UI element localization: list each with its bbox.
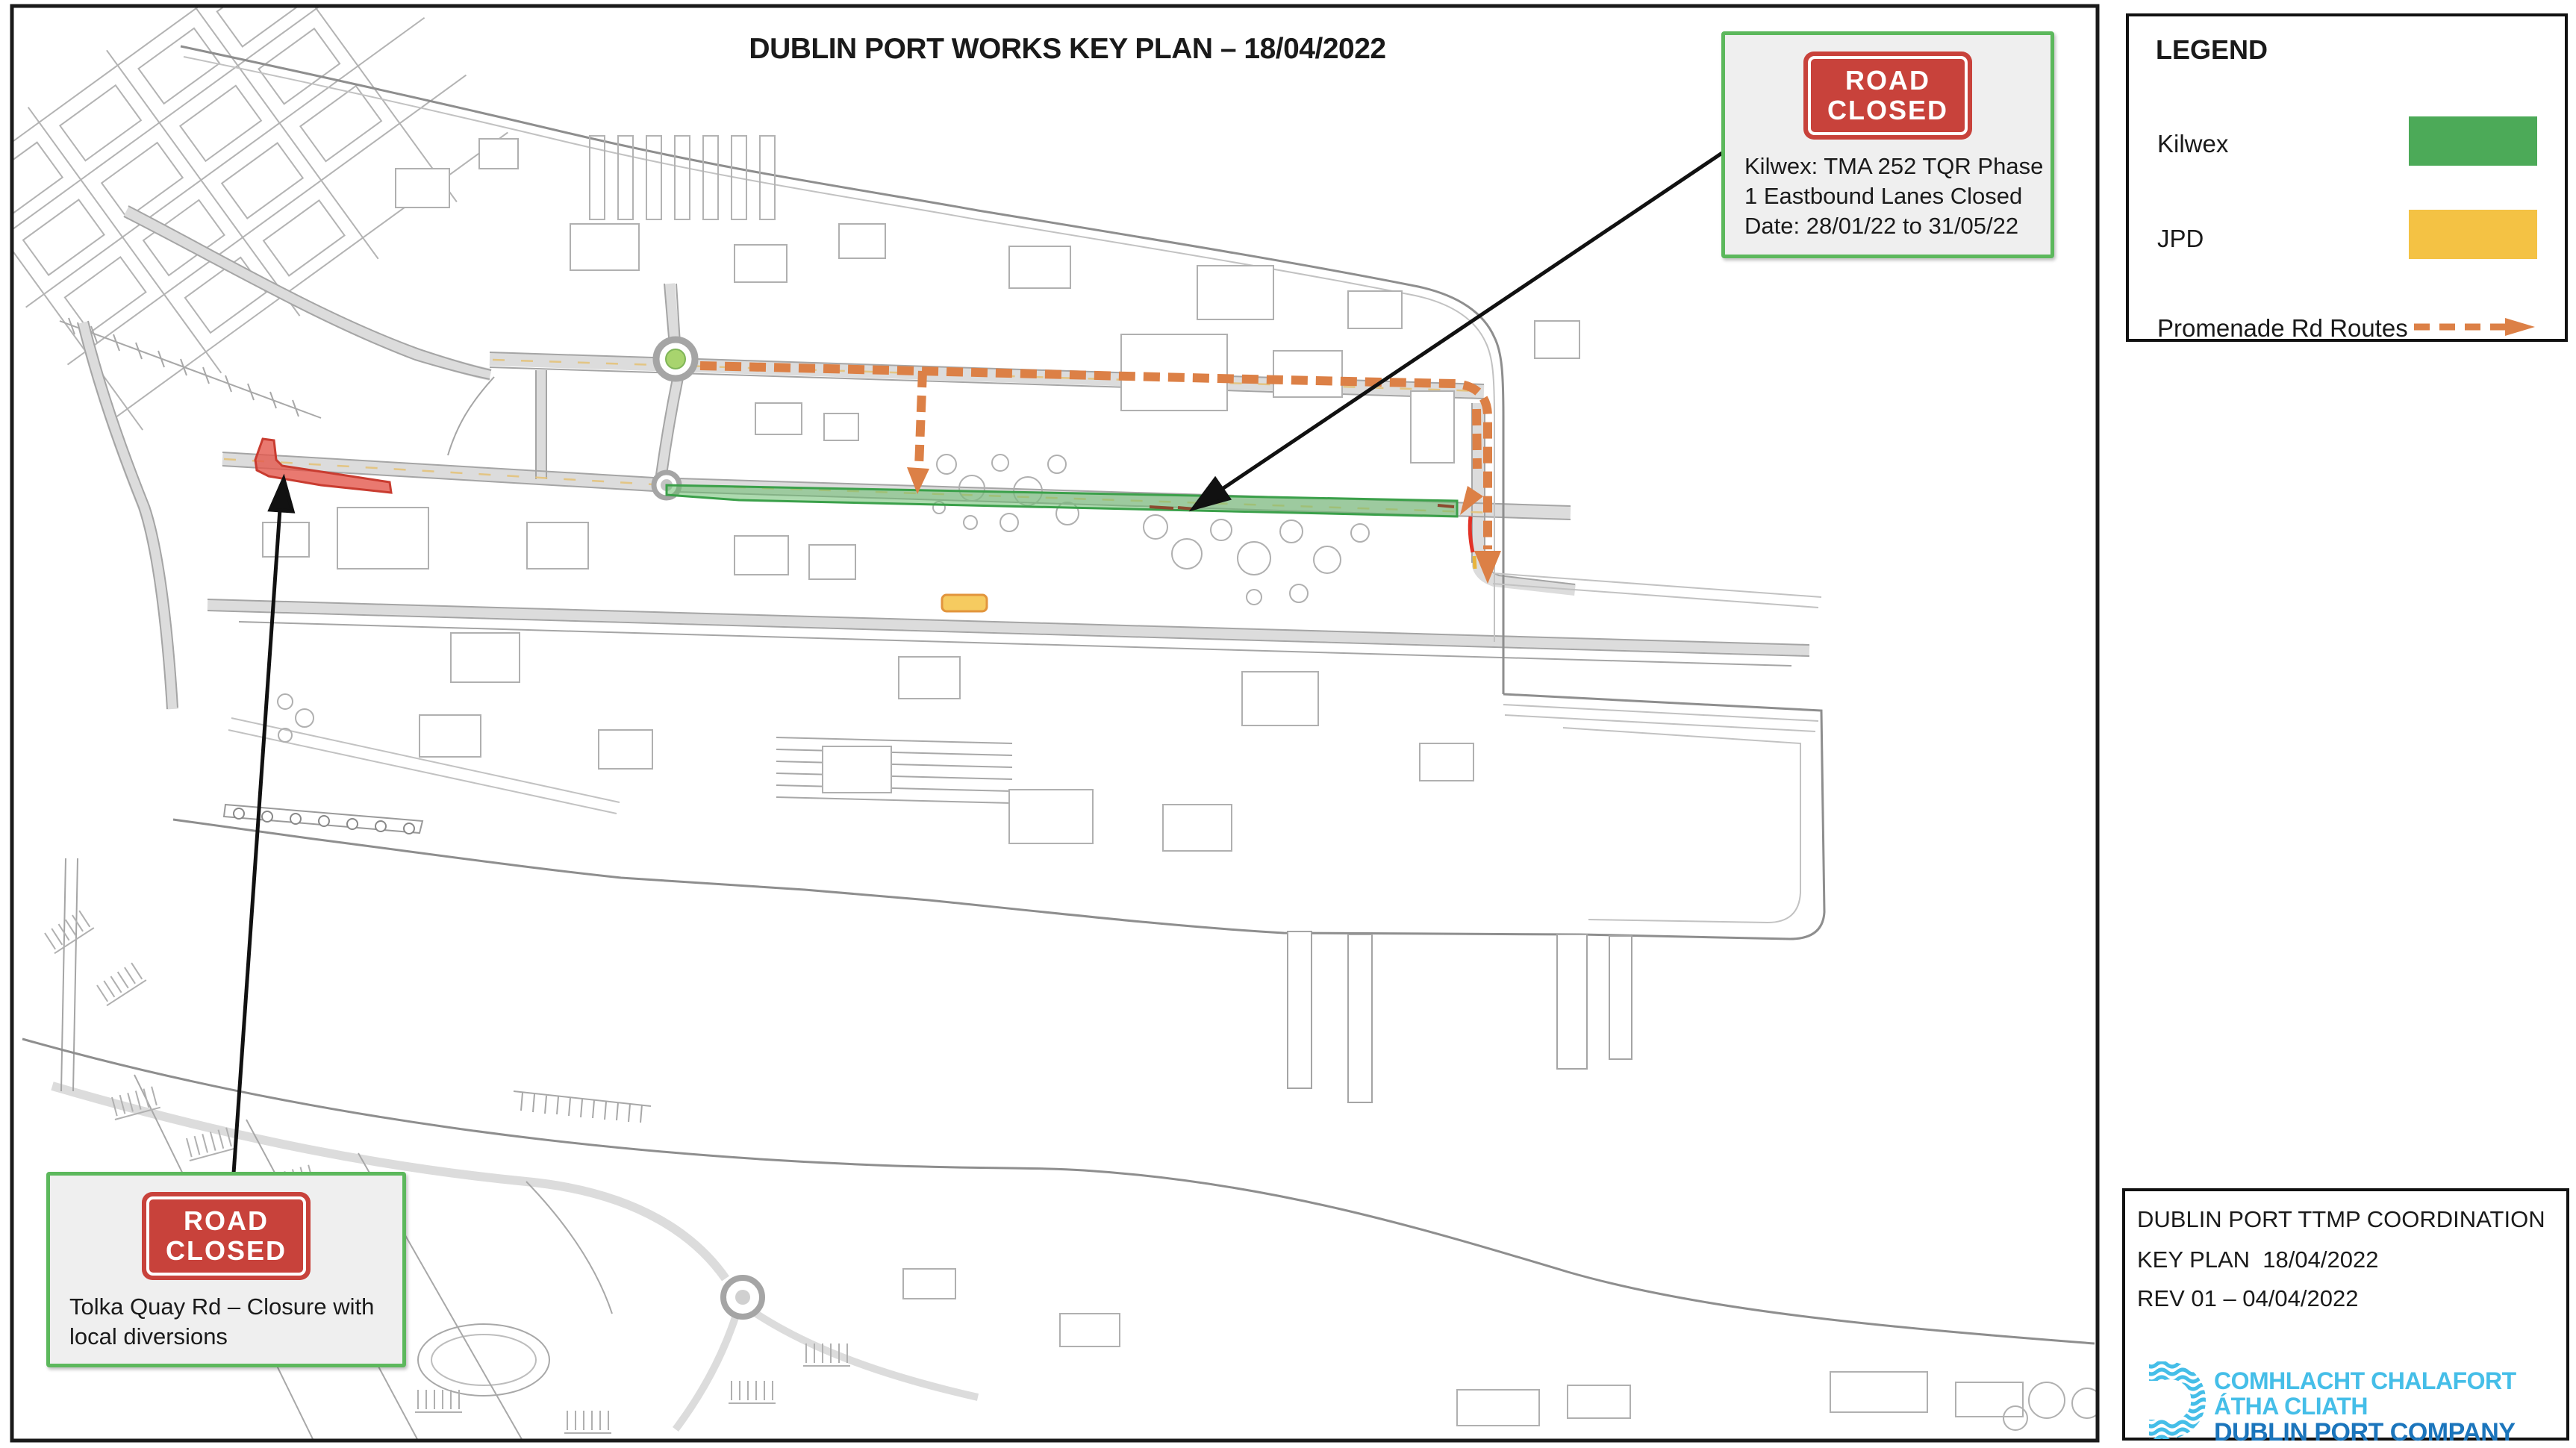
promenade-route-arrowheads [907, 467, 1501, 584]
sign-text: ROAD [184, 1206, 269, 1236]
sign-text: ROAD [1845, 66, 1930, 96]
title-block-line: KEY PLAN 18/04/2022 [2137, 1246, 2378, 1273]
callout-text-line: Tolka Quay Rd – Closure with [69, 1292, 402, 1322]
roundabout-island [666, 349, 685, 369]
sign-text: CLOSED [166, 1236, 287, 1266]
promenade-route-arrow-icon [2411, 315, 2538, 339]
title-block-line: REV 01 – 04/04/2022 [2137, 1285, 2358, 1312]
jpd-swatch [2409, 210, 2537, 259]
page-title: DUBLIN PORT WORKS KEY PLAN – 18/04/2022 [709, 33, 1426, 66]
sign-text: CLOSED [1827, 96, 1948, 125]
title-block-line: DUBLIN PORT TTMP COORDINATION [2137, 1206, 2545, 1233]
kilwex-swatch [2409, 116, 2537, 166]
title-block: DUBLIN PORT TTMP COORDINATION KEY PLAN 1… [2122, 1188, 2569, 1441]
road-closed-sign: ROAD CLOSED [1803, 52, 1972, 140]
callout-text-line: Date: 28/01/22 to 31/05/22 [1744, 211, 2050, 241]
logo-text-line: DUBLIN PORT COMPANY [2214, 1418, 2516, 1447]
legend-label-kilwex: Kilwex [2157, 130, 2228, 158]
callout-text-line: 1 Eastbound Lanes Closed [1744, 181, 2050, 211]
dublin-port-logo-icon [2139, 1360, 2207, 1442]
callout-body: Tolka Quay Rd – Closure with local diver… [69, 1292, 402, 1352]
legend-heading: LEGEND [2156, 34, 2268, 66]
legend-label-promenade: Promenade Rd Routes [2157, 314, 2408, 343]
dublin-port-key-plan-page: DUBLIN PORT WORKS KEY PLAN – 18/04/2022 … [0, 0, 2576, 1448]
callout-tolka-closure: ROAD CLOSED Tolka Quay Rd – Closure with… [46, 1172, 406, 1367]
legend-panel: LEGEND Kilwex JPD Promenade Rd Routes [2126, 13, 2568, 342]
legend-label-jpd: JPD [2157, 225, 2204, 253]
callout-body: Kilwex: TMA 252 TQR Phase 1 Eastbound La… [1744, 152, 2050, 241]
callout-kilwex-closure: ROAD CLOSED Kilwex: TMA 252 TQR Phase 1 … [1721, 31, 2054, 258]
callout-text-line: Kilwex: TMA 252 TQR Phase [1744, 152, 2050, 181]
logo-text-line: COMHLACHT CHALAFORT [2214, 1367, 2516, 1395]
logo-text-line: ÁTHA CLIATH [2214, 1393, 2368, 1420]
callout-text-line: local diversions [69, 1322, 402, 1352]
road-closed-sign: ROAD CLOSED [142, 1192, 311, 1280]
jpd-marker [942, 595, 987, 611]
